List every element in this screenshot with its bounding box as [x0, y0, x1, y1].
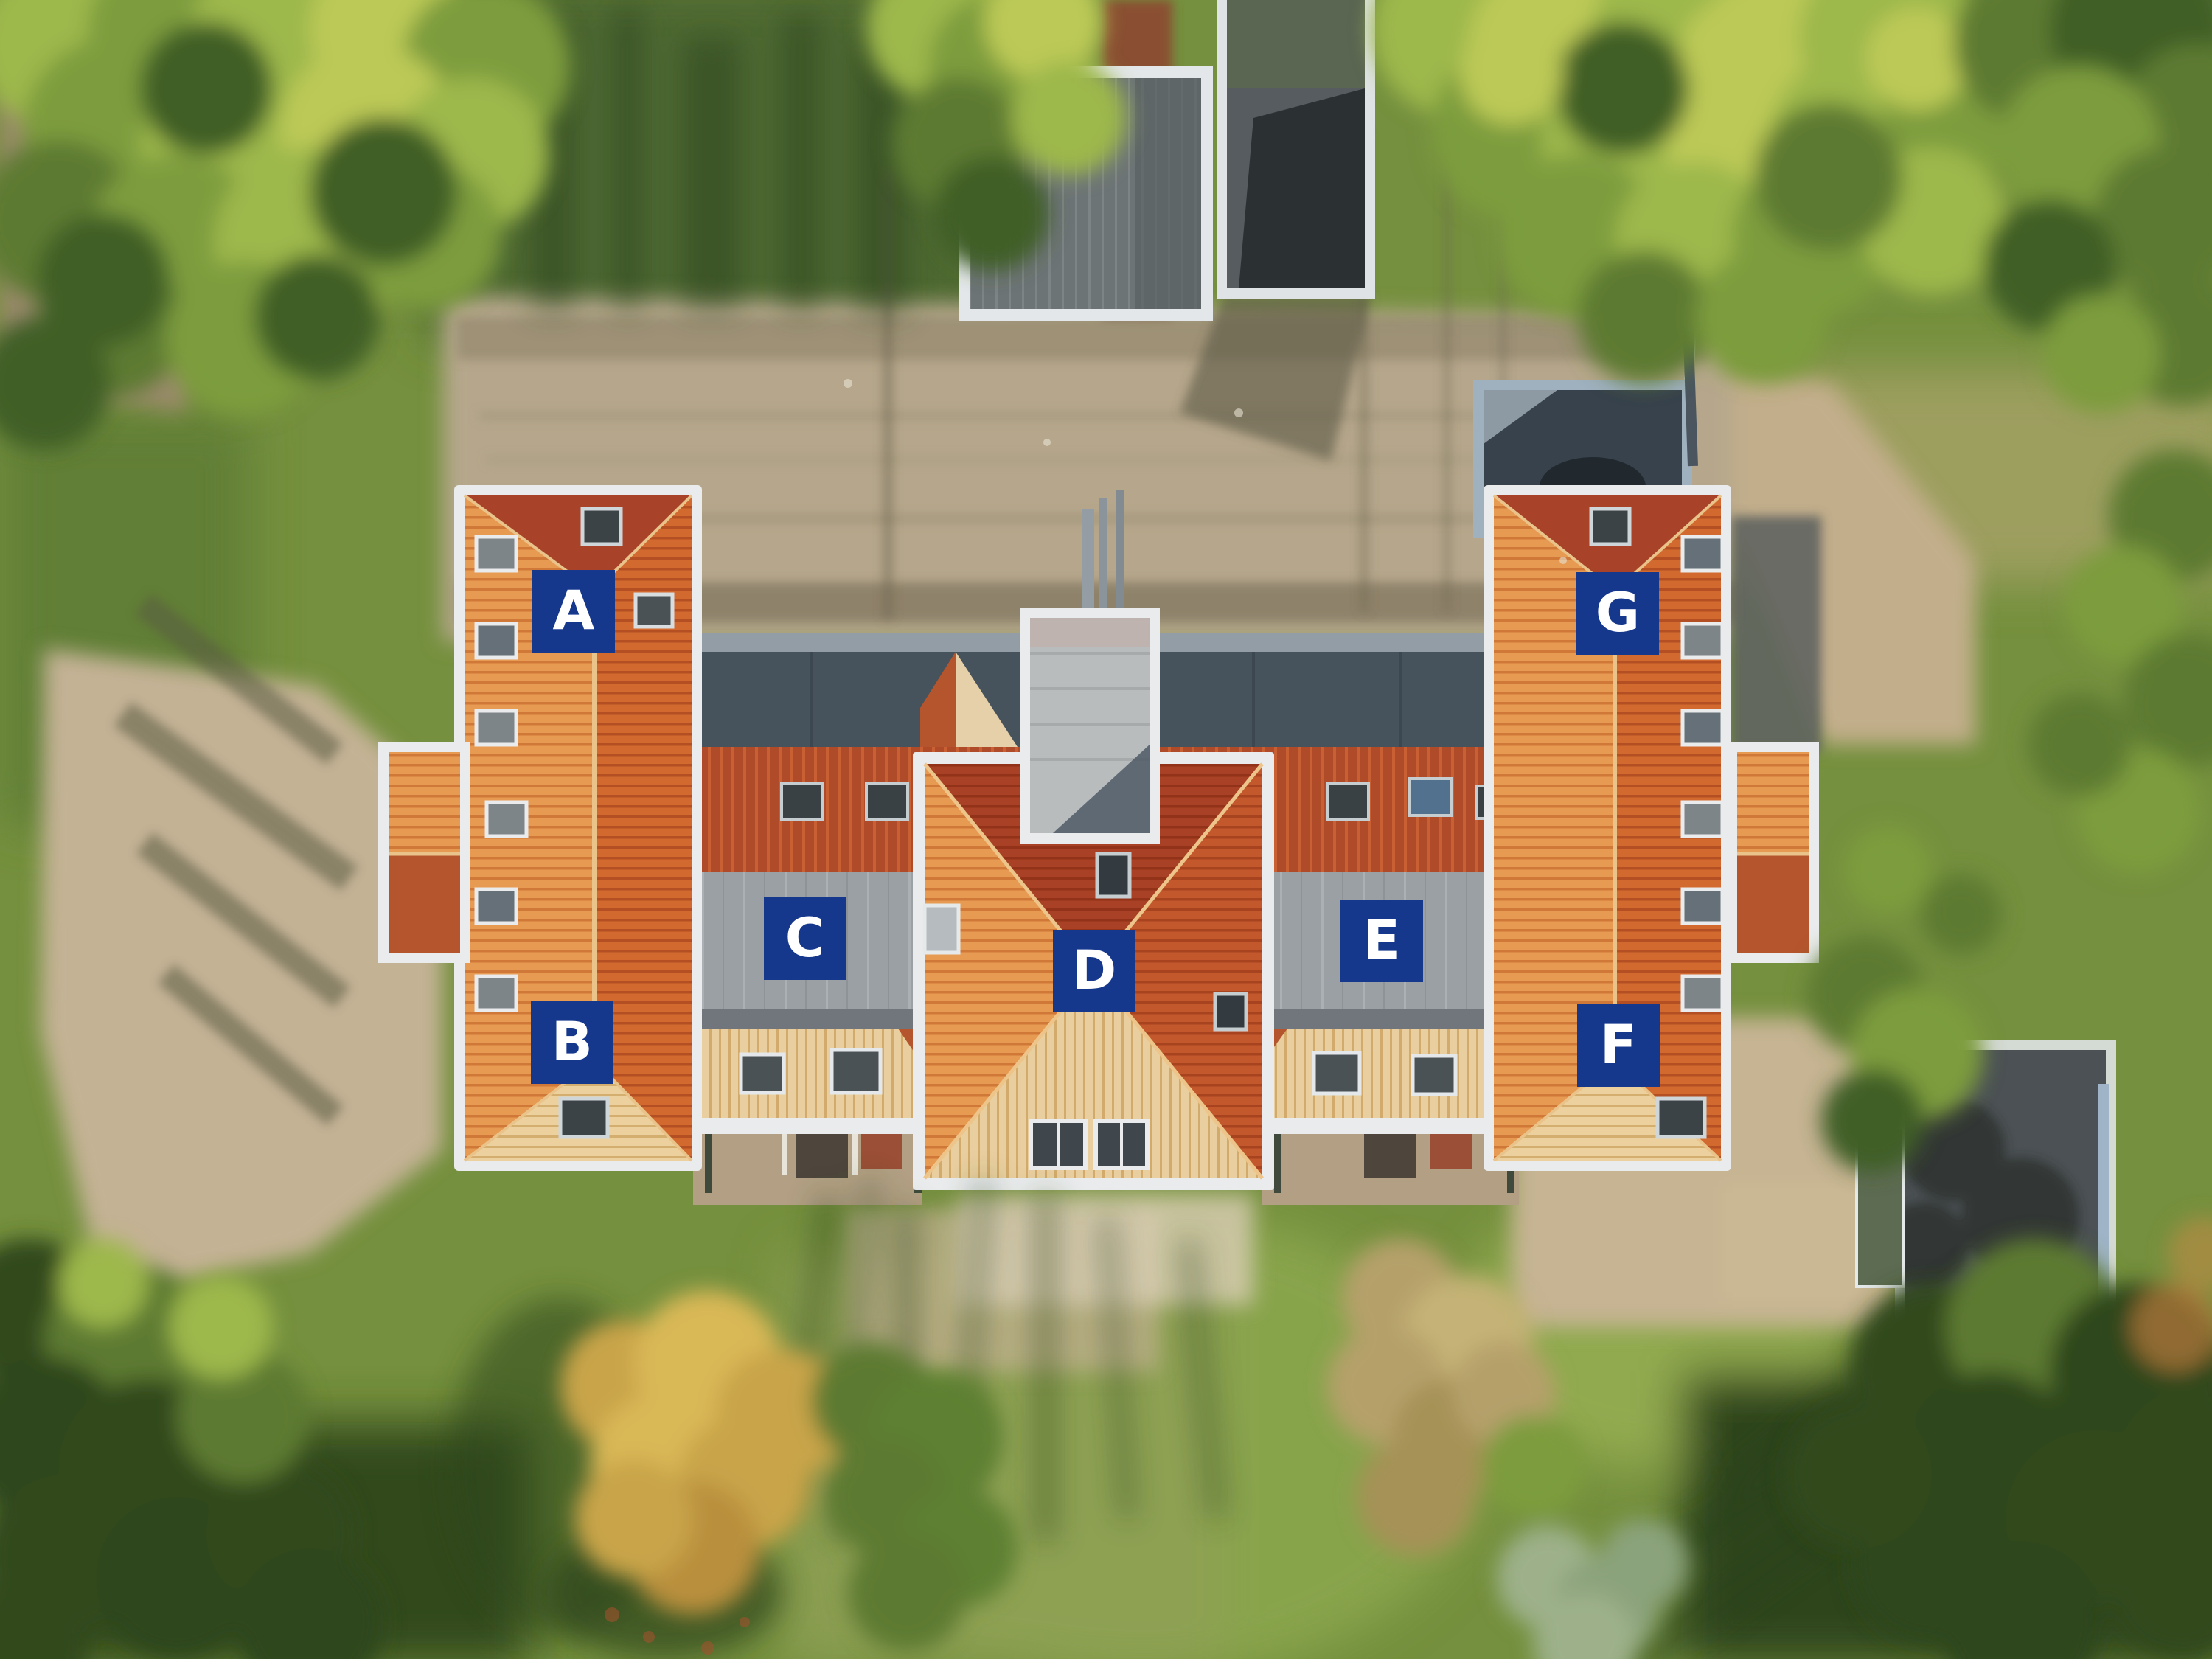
- unit-label-e: E: [1340, 900, 1423, 982]
- unit-label-d: D: [1053, 930, 1135, 1012]
- construction-planks: [1082, 490, 1124, 621]
- aerial-photo-svg: [0, 0, 2212, 1659]
- roof-dormer: [925, 905, 959, 953]
- unit-label-g: G: [1576, 572, 1659, 655]
- unit-label-a: A: [532, 570, 615, 653]
- skylight: [1591, 509, 1630, 544]
- outbuilding-roof-right: [1217, 0, 1375, 299]
- unit-label-c: C: [764, 897, 846, 980]
- skylight: [1658, 1099, 1705, 1137]
- right-wing-side-gable: [1727, 742, 1819, 963]
- elevator-shaft-roof: [1020, 608, 1160, 844]
- unit-label-b: B: [531, 1001, 613, 1084]
- skylight: [1215, 994, 1246, 1029]
- skylight: [636, 594, 672, 627]
- skylight: [560, 1099, 608, 1137]
- left-wing-side-gable: [378, 742, 470, 963]
- aerial-photo: A B C D E F G: [0, 0, 2212, 1659]
- unit-label-f: F: [1577, 1004, 1660, 1087]
- skylight: [582, 509, 621, 544]
- skylight: [1097, 854, 1130, 897]
